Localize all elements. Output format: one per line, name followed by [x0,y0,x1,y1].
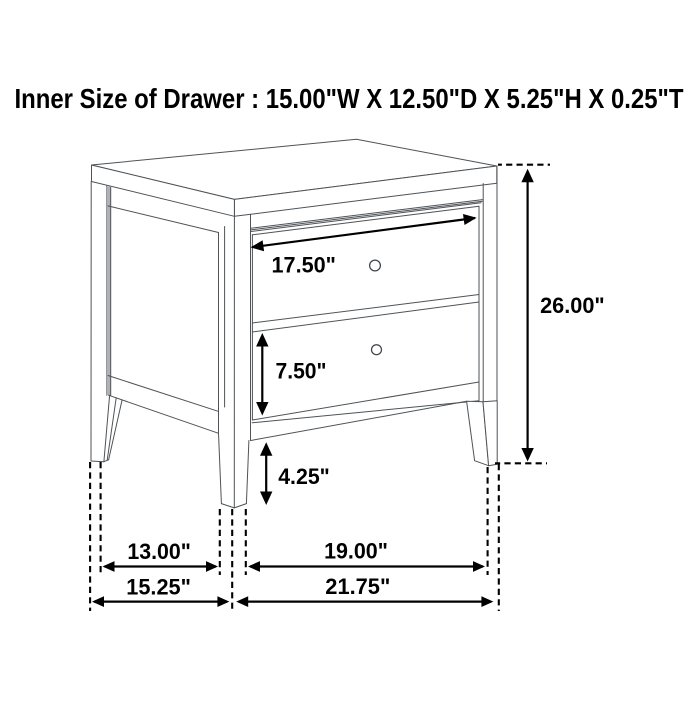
svg-text:19.00": 19.00" [324,539,388,564]
svg-text:15.25": 15.25" [126,574,191,599]
svg-text:26.00": 26.00" [540,293,605,318]
svg-text:Inner Size of Drawer : 15.00"W: Inner Size of Drawer : 15.00"W X 12.50"D… [15,83,684,114]
svg-text:17.50": 17.50" [272,252,336,277]
svg-text:7.50": 7.50" [276,359,327,384]
svg-text:13.00": 13.00" [127,539,190,564]
svg-text:21.75": 21.75" [325,574,390,599]
svg-text:4.25": 4.25" [278,464,330,489]
